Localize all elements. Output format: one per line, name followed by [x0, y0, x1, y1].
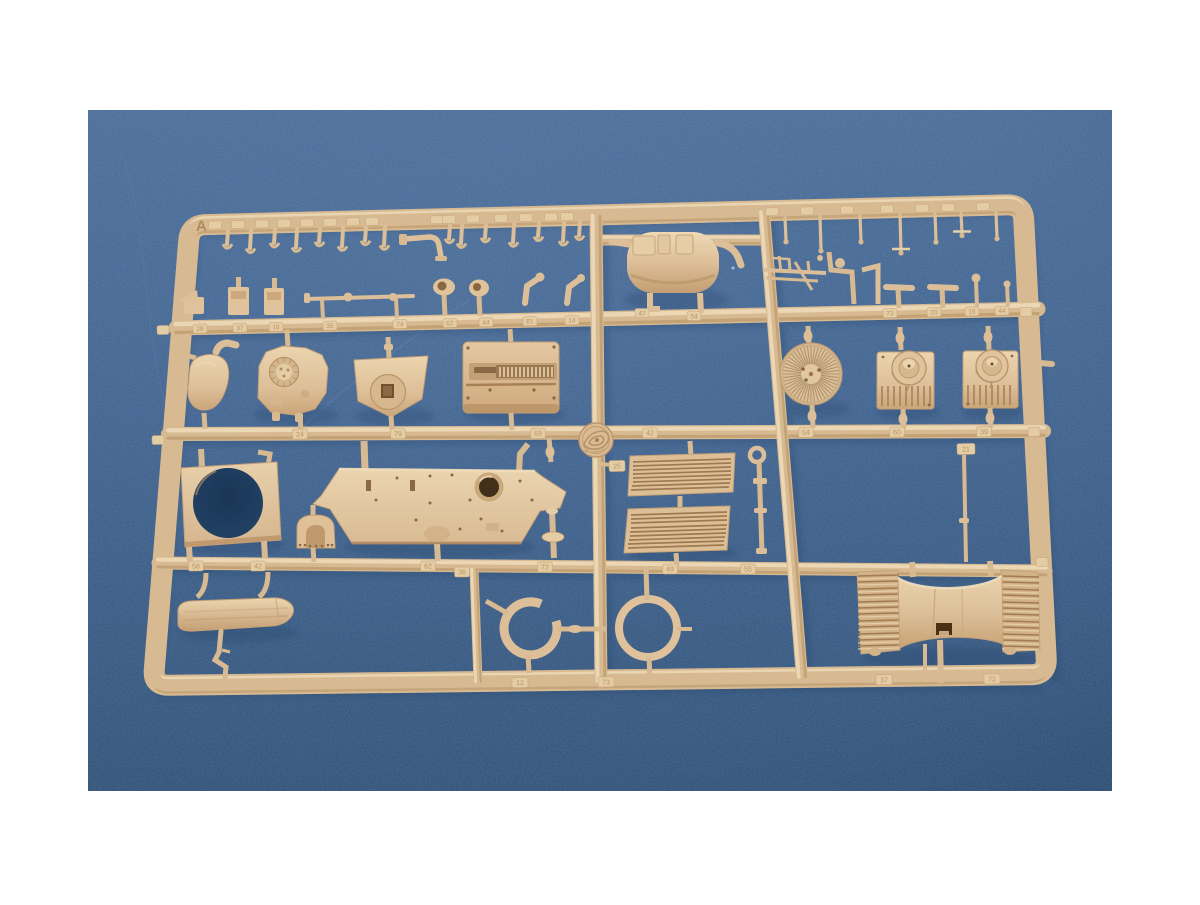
svg-text:14: 14: [568, 317, 576, 324]
svg-text:39: 39: [980, 429, 988, 436]
svg-text:79: 79: [394, 431, 402, 438]
svg-text:A: A: [196, 218, 207, 235]
svg-text:69: 69: [534, 431, 542, 438]
svg-text:24: 24: [296, 432, 304, 439]
svg-text:36: 36: [458, 569, 466, 576]
svg-text:44: 44: [998, 308, 1006, 315]
svg-text:28: 28: [196, 326, 204, 333]
svg-text:74: 74: [396, 321, 404, 328]
svg-text:54: 54: [690, 313, 698, 320]
svg-text:62: 62: [446, 320, 454, 327]
svg-text:81: 81: [526, 318, 534, 325]
svg-text:55: 55: [744, 566, 752, 573]
svg-text:49: 49: [666, 566, 674, 573]
svg-text:62: 62: [424, 563, 432, 570]
svg-text:20: 20: [930, 309, 938, 316]
svg-text:12: 12: [516, 680, 524, 687]
svg-text:72: 72: [541, 564, 549, 571]
svg-text:73: 73: [886, 310, 894, 317]
svg-text:42: 42: [646, 430, 654, 437]
svg-text:15: 15: [968, 309, 976, 316]
svg-text:72: 72: [988, 676, 996, 683]
svg-text:21: 21: [962, 446, 970, 453]
svg-text:35: 35: [326, 323, 334, 330]
svg-text:18: 18: [272, 324, 280, 331]
svg-text:44: 44: [482, 319, 490, 326]
svg-text:37: 37: [236, 325, 244, 332]
svg-text:25: 25: [613, 463, 621, 470]
svg-text:47: 47: [638, 310, 646, 317]
svg-text:42: 42: [254, 563, 262, 570]
svg-text:37: 37: [880, 677, 888, 684]
svg-text:58: 58: [192, 563, 200, 570]
svg-text:54: 54: [802, 430, 810, 437]
svg-text:73: 73: [602, 679, 610, 686]
svg-text:60: 60: [893, 429, 901, 436]
